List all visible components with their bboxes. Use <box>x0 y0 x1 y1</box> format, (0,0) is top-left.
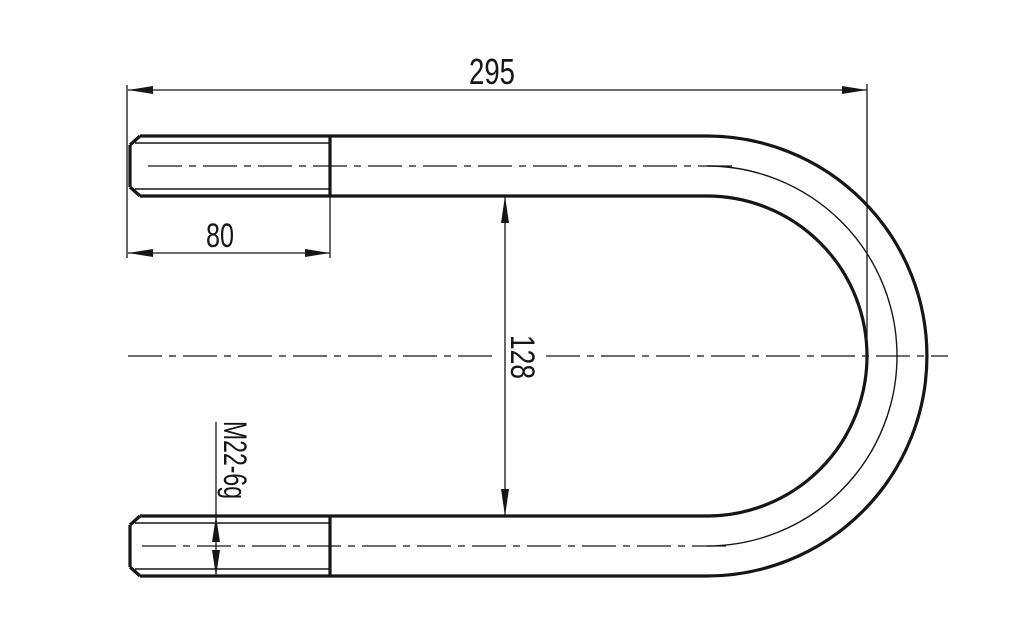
arrow-thread-spec-up <box>212 516 220 542</box>
arrow-overall-right <box>842 86 867 94</box>
arrow-thread-length-right <box>305 249 330 257</box>
dim-text-overall-length: 295 <box>469 51 515 92</box>
arrow-leg-span-bottom <box>501 489 509 516</box>
dimension-lines <box>127 84 867 576</box>
arrow-overall-left <box>128 86 153 94</box>
drawing-canvas: 295 80 128 M22-6g <box>0 0 1024 618</box>
arrow-leg-span-top <box>501 196 509 223</box>
arrow-thread-spec-down <box>212 550 220 576</box>
dimension-arrowheads <box>128 86 867 576</box>
arrow-thread-length-left <box>128 249 153 257</box>
dim-text-thread-length: 80 <box>206 217 234 255</box>
u-bolt-technical-drawing: 295 80 128 M22-6g <box>0 0 1024 618</box>
dim-text-leg-span: 128 <box>503 335 541 379</box>
dim-text-thread-spec: M22-6g <box>217 421 253 499</box>
